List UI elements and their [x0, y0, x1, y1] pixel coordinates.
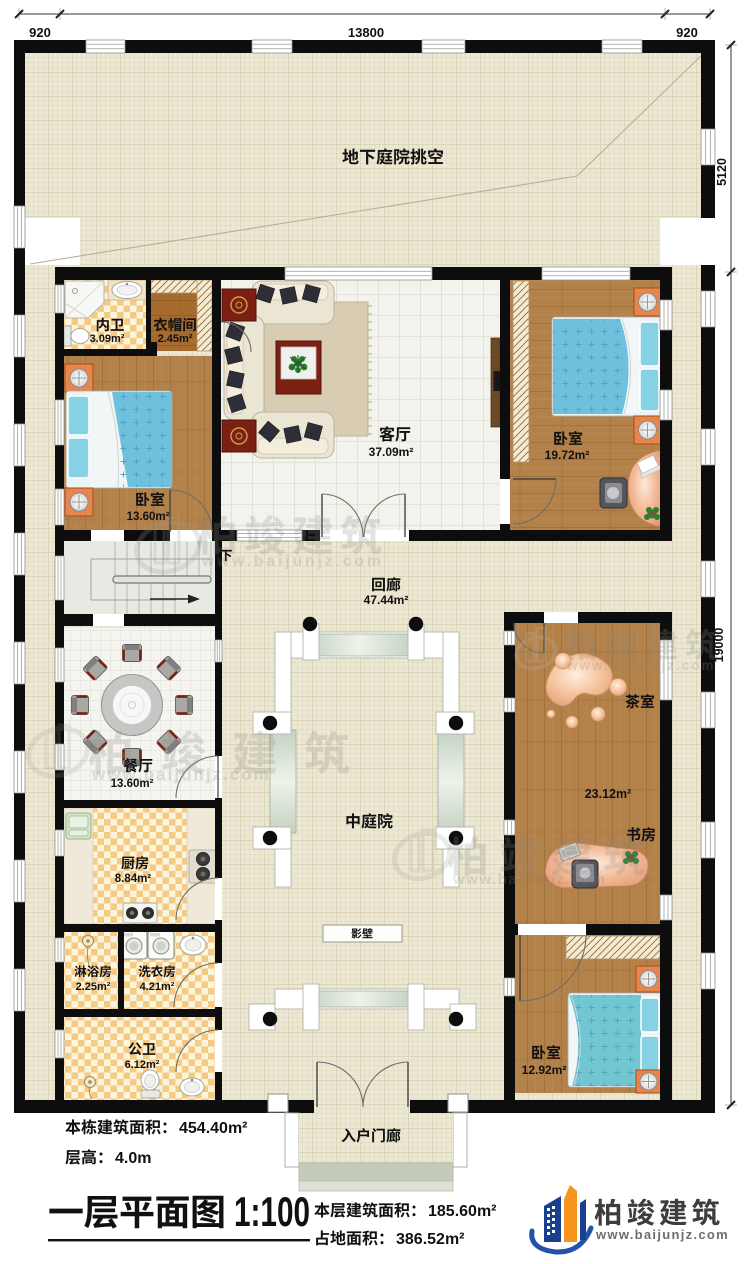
svg-text:920: 920: [676, 25, 698, 40]
svg-text:www.baijunjz.com: www.baijunjz.com: [566, 658, 716, 673]
svg-text:2.45m²: 2.45m²: [158, 333, 193, 345]
svg-text:www.baijunjz.com: www.baijunjz.com: [452, 871, 606, 888]
svg-text:4.0m: 4.0m: [115, 1150, 151, 1167]
svg-text:12.92m²: 12.92m²: [522, 1063, 567, 1077]
svg-text:2.25m²: 2.25m²: [76, 981, 111, 993]
svg-text:5120: 5120: [715, 158, 729, 186]
svg-text:13.60m²: 13.60m²: [127, 511, 170, 523]
svg-text:23.12m²: 23.12m²: [585, 787, 632, 801]
svg-text:19.72m²: 19.72m²: [545, 448, 590, 462]
svg-text:47.44m²: 47.44m²: [364, 593, 409, 607]
svg-text:3.09m²: 3.09m²: [90, 333, 125, 345]
svg-text:37.09m²: 37.09m²: [369, 445, 414, 459]
svg-text:8.84m²: 8.84m²: [115, 873, 152, 885]
svg-text:4.21m²: 4.21m²: [140, 981, 175, 993]
svg-text:6.12m²: 6.12m²: [125, 1059, 160, 1071]
svg-text:454.40m²: 454.40m²: [179, 1120, 248, 1137]
svg-text:1:100: 1:100: [234, 1188, 310, 1235]
svg-text:13800: 13800: [348, 25, 384, 40]
svg-text:www.baijunjz.com: www.baijunjz.com: [595, 1227, 729, 1242]
svg-text:19000: 19000: [712, 628, 726, 663]
svg-text:386.52m²: 386.52m²: [396, 1231, 465, 1248]
svg-text:920: 920: [29, 25, 51, 40]
svg-text:13.60m²: 13.60m²: [111, 778, 154, 790]
svg-text:185.60m²: 185.60m²: [428, 1203, 497, 1220]
